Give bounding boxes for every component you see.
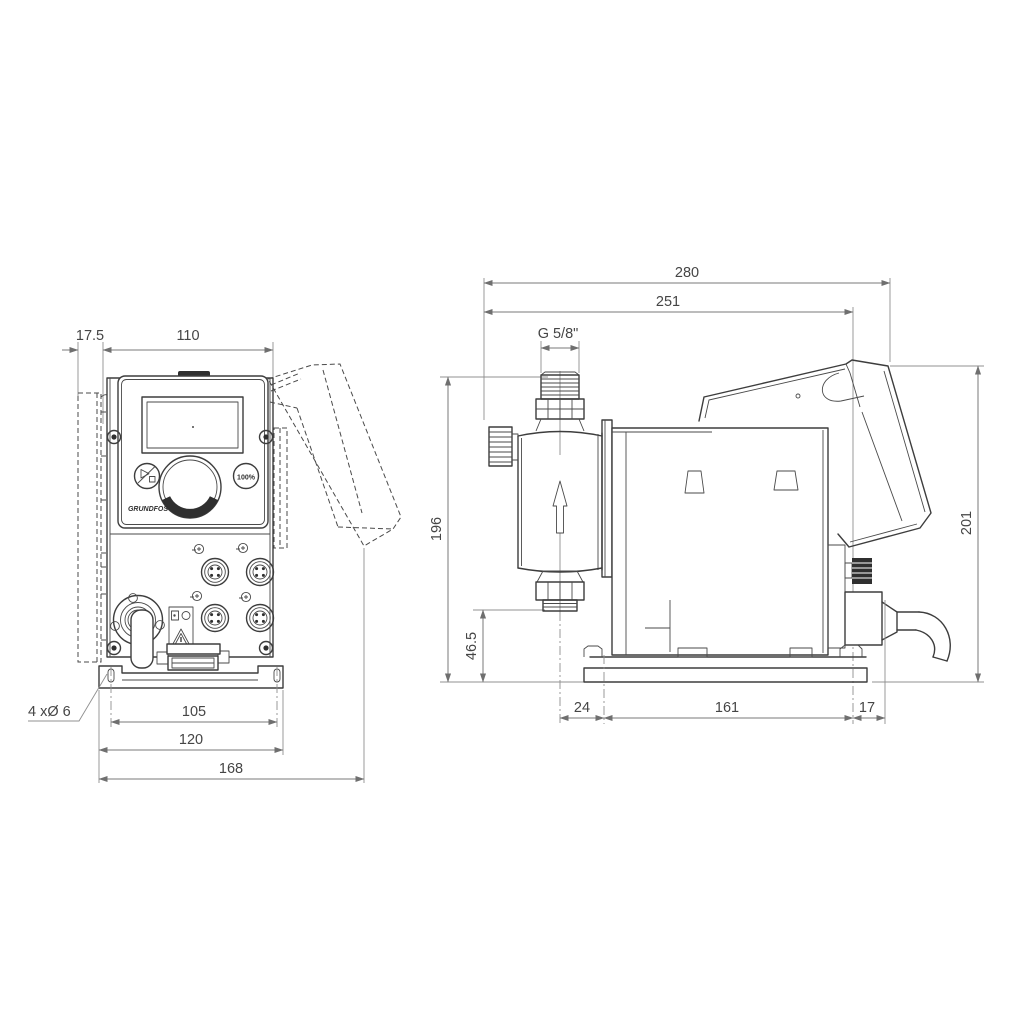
dim-201-label: 201 <box>959 511 975 535</box>
dim-196-label: 196 <box>429 517 445 541</box>
hundred-percent-label: 100% <box>237 475 256 482</box>
grundfos-logo: GRUNDFOS <box>128 506 168 513</box>
bottom-clamp <box>157 644 229 670</box>
dim-251-label: 251 <box>656 294 680 310</box>
dim-17-label: 17 <box>859 700 875 716</box>
dim-120-label: 120 <box>179 732 203 748</box>
thread-label: G 5/8" <box>538 326 579 342</box>
control-panel: 100% GRUNDFOS <box>118 376 268 528</box>
dim-161-label: 161 <box>715 700 739 716</box>
union-nut-top <box>536 399 584 419</box>
pump-side-body <box>612 428 950 661</box>
holes-callout: 4 xØ 6 <box>28 674 107 721</box>
dim-17-5-label: 17.5 <box>76 328 104 344</box>
dosing-head <box>489 371 612 612</box>
hood-front-hidden <box>268 364 401 548</box>
union-nut-bottom <box>536 582 584 600</box>
motor-end <box>828 545 845 648</box>
side-view: 280 251 G 5/8" 196 46.5 201 <box>429 265 984 724</box>
wall-plate <box>78 393 111 662</box>
dim-168-label: 168 <box>219 761 243 777</box>
dim-280-label: 280 <box>675 265 699 281</box>
pump-dimensional-drawing: 17.5 110 <box>0 0 1024 1024</box>
pump-front-body: 100% GRUNDFOS <box>107 371 274 670</box>
dim-24-label: 24 <box>574 700 590 716</box>
dim-46-5-label: 46.5 <box>464 632 480 660</box>
vent-valve[interactable] <box>489 427 518 466</box>
dim-105-label: 105 <box>182 704 206 720</box>
cable-gland <box>845 592 950 661</box>
dim-110-label: 110 <box>176 328 199 344</box>
hood-handle[interactable] <box>822 373 864 401</box>
thread-dimension: G 5/8" <box>538 326 579 373</box>
dimensional-drawing-page: 17.5 110 <box>0 0 1024 1024</box>
holes-label: 4 xØ 6 <box>28 704 71 720</box>
drain-tube <box>131 610 153 668</box>
flow-arrow-icon <box>553 481 567 533</box>
front-view: 17.5 110 <box>28 328 401 783</box>
conduit-thread <box>845 558 872 584</box>
head-mount-plate <box>602 420 612 577</box>
